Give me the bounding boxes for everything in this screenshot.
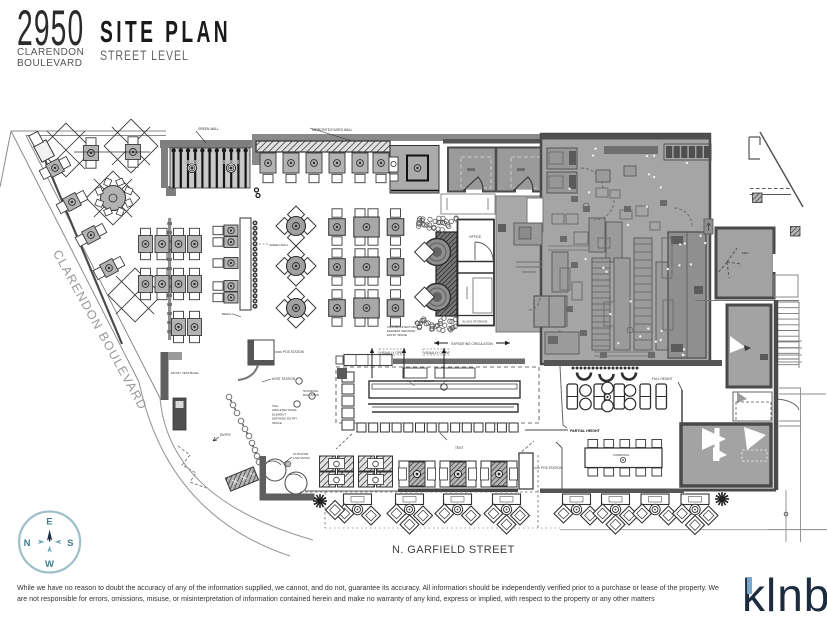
svg-text:POS STATION: POS STATION (283, 350, 305, 354)
svg-text:MEC: MEC (742, 251, 750, 255)
svg-text:FULL HEIGHT: FULL HEIGHT (652, 377, 673, 381)
svg-text:BENCH: BENCH (222, 312, 233, 316)
svg-text:BOLLARDS: BOLLARDS (303, 393, 319, 397)
svg-text:SPACE: SPACE (272, 421, 282, 425)
svg-text:VISUALLY OPEN: VISUALLY OPEN (380, 351, 406, 355)
svg-text:COFFEE: COFFEE (465, 286, 469, 299)
svg-text:GLASS STORAGE: GLASS STORAGE (462, 320, 487, 324)
svg-text:COMMUNAL: COMMUNAL (613, 453, 630, 457)
svg-text:ENTRY VESTIBULE: ENTRY VESTIBULE (171, 371, 198, 375)
svg-text:LIVE MUSIC: LIVE MUSIC (293, 456, 311, 460)
svg-text:PARTIAL HEIGHT: PARTIAL HEIGHT (570, 429, 601, 433)
svg-text:MIRROR/TEXTURED WALL: MIRROR/TEXTURED WALL (312, 128, 353, 132)
svg-text:EXPEDITING CIRCULATION: EXPEDITING CIRCULATION (451, 342, 493, 346)
svg-text:GREEN WALL: GREEN WALL (198, 127, 219, 131)
svg-text:ENTRY SPACE: ENTRY SPACE (387, 333, 407, 337)
svg-text:GREEN WALL: GREEN WALL (269, 243, 289, 247)
svg-text:POS STATION: POS STATION (541, 466, 563, 470)
svg-text:TENT: TENT (455, 446, 463, 450)
svg-text:HOST STATION: HOST STATION (272, 377, 296, 381)
svg-text:BAR SHELVING: BAR SHELVING (414, 379, 434, 383)
svg-text:ENTRY: ENTRY (220, 433, 232, 437)
svg-text:OFFICE: OFFICE (469, 235, 482, 239)
